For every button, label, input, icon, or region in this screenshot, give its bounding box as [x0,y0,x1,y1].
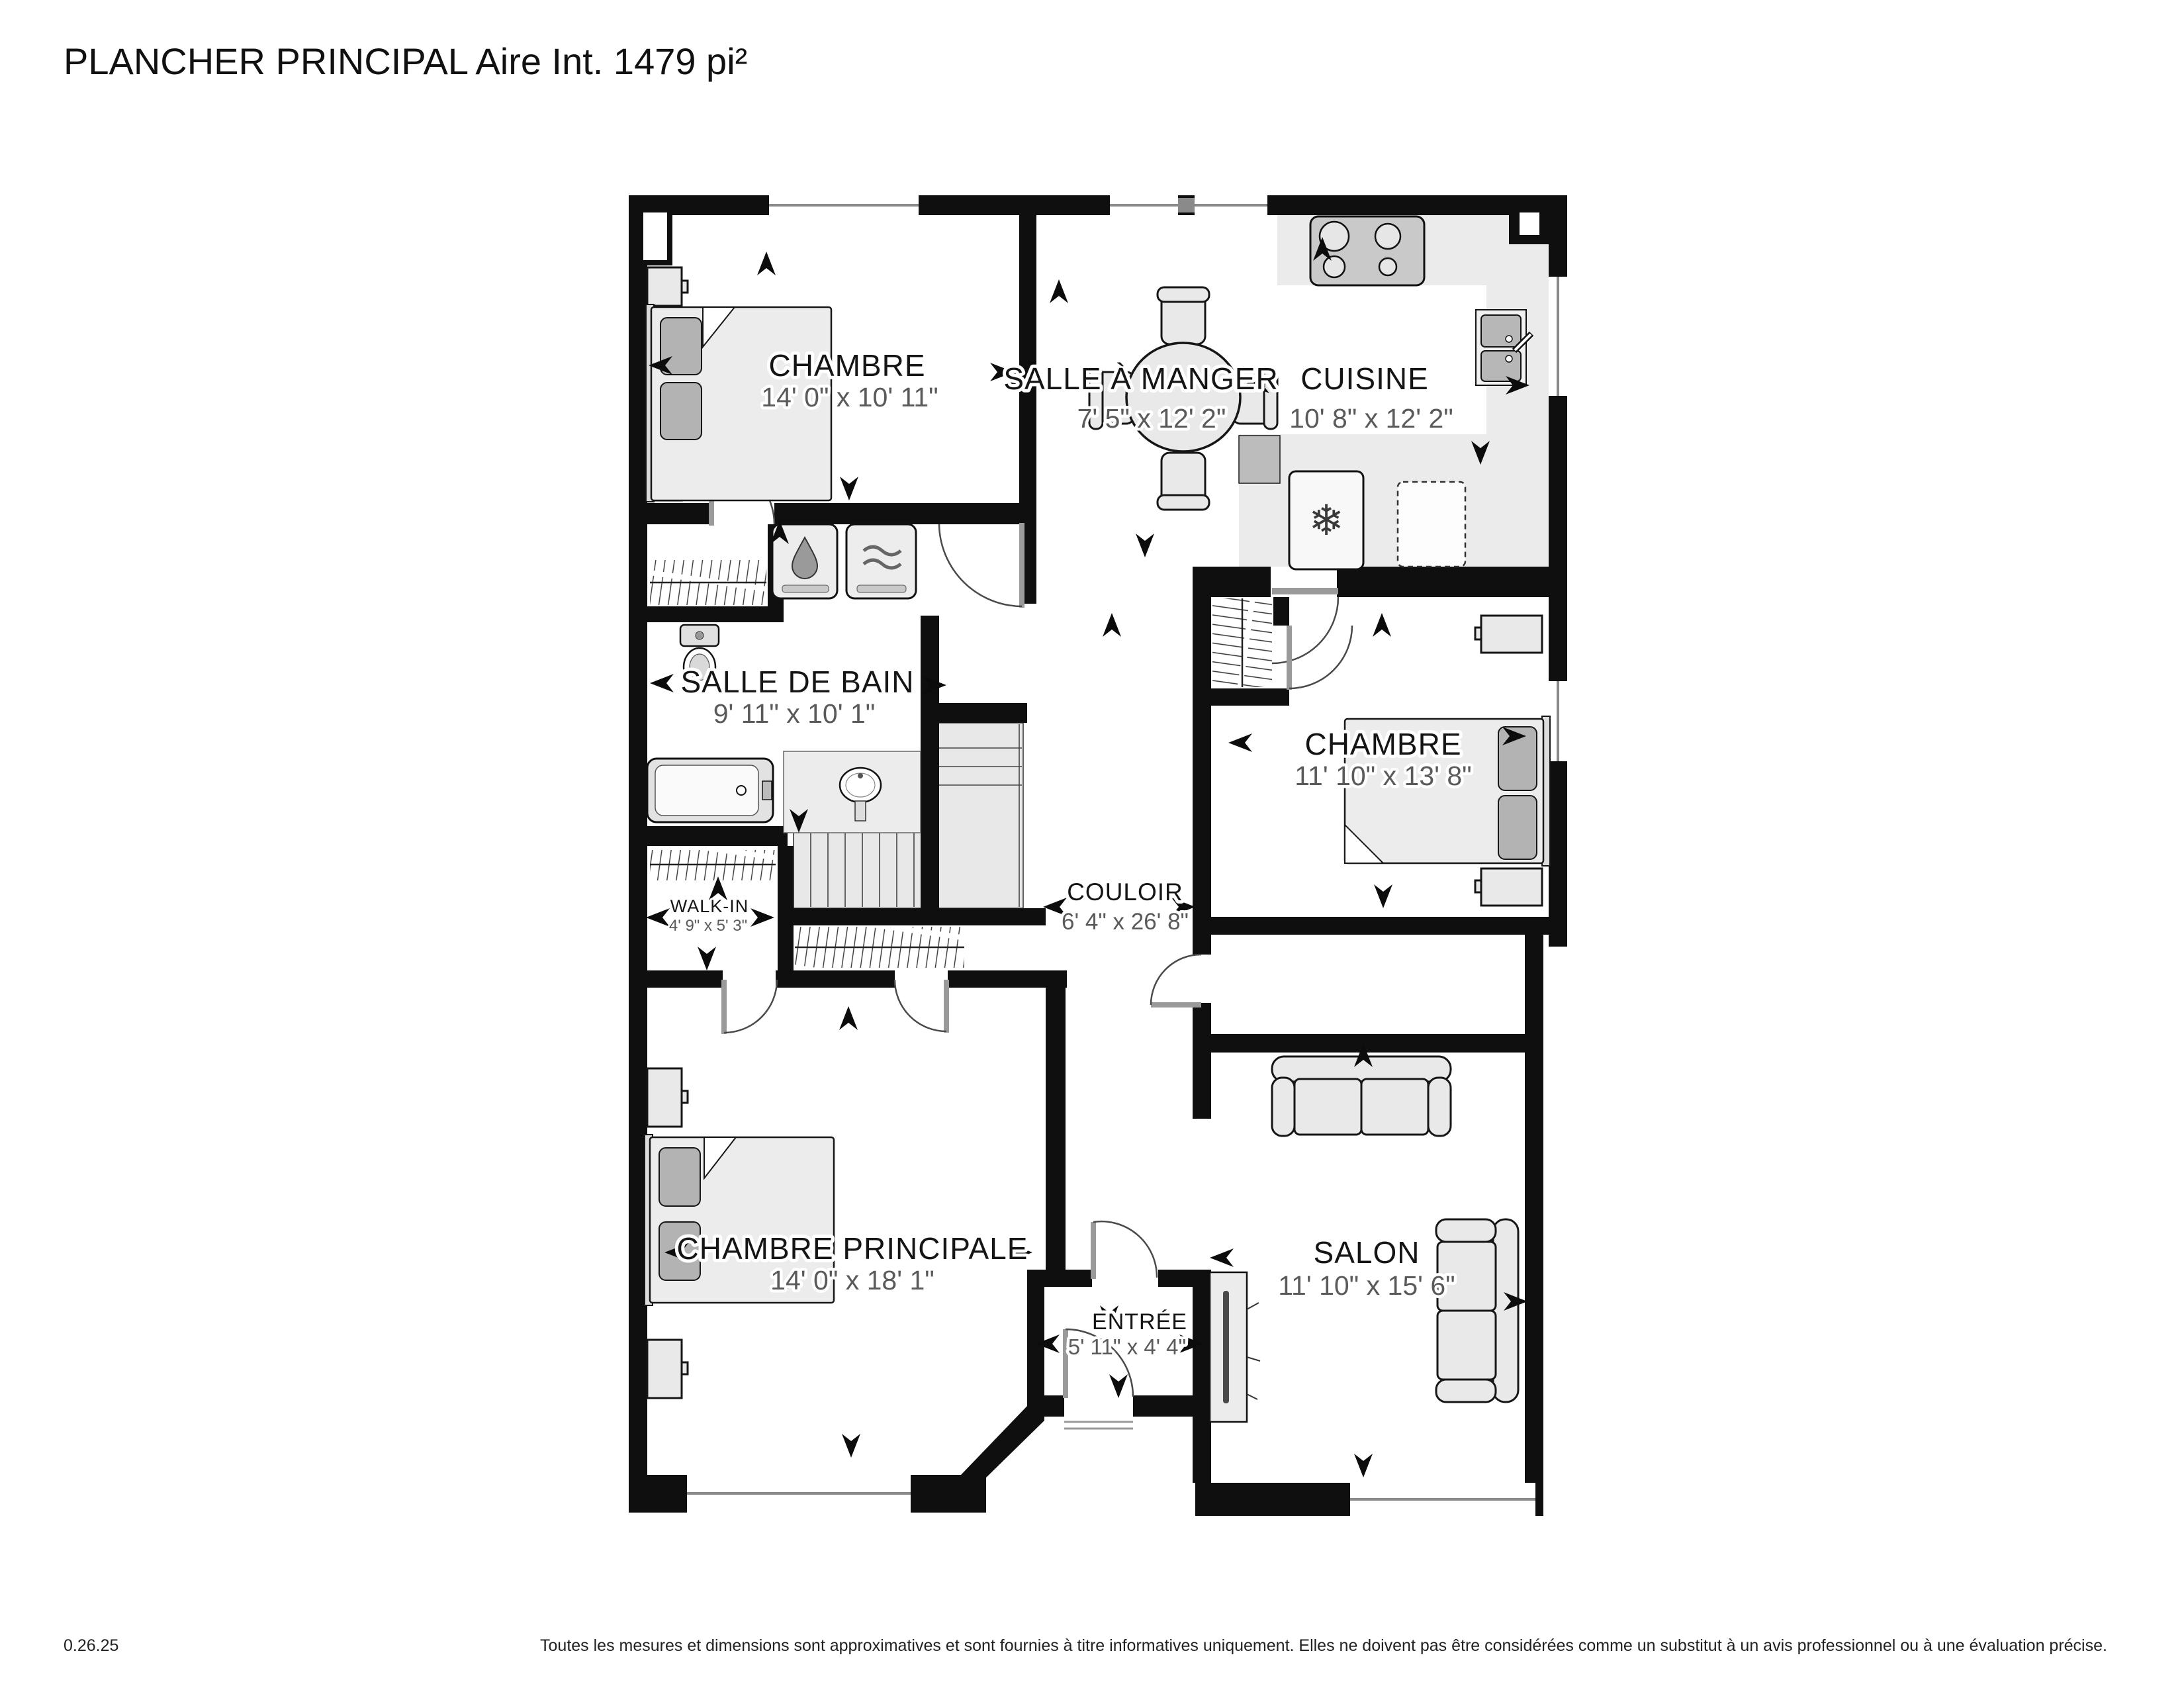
fridge: ❄ [1289,471,1363,569]
dims-walk-in: 4' 9" x 5' 3" [669,917,747,935]
label-bedroom-right: CHAMBRE [1304,727,1461,761]
nightstand [1481,868,1542,906]
dishwasher [1398,482,1465,567]
label-living: SALON [1314,1235,1420,1270]
dims-master: 14' 0" x 18' 1" [770,1265,934,1295]
dims-bedroom-right: 11' 10" x 13' 8" [1295,761,1471,791]
page-title: PLANCHER PRINCIPAL Aire Int. 1479 pi² [64,40,747,82]
label-dining: SALLE À MANGER [1003,361,1278,396]
dims-bathroom: 9' 11" x 10' 1" [713,698,876,729]
label-walk-in: WALK-IN [670,896,749,916]
dims-living: 11' 10" x 15' 6" [1278,1270,1455,1301]
floorplan-canvas: PLANCHER PRINCIPAL Aire Int. 1479 pi² 0.… [0,0,2184,1688]
chimney-left [643,212,667,260]
tv-console [1210,1272,1260,1422]
dining-table [1126,343,1240,451]
label-bedroom-tl: CHAMBRE [768,348,925,383]
dims-entry: 5' 11" x 4' 4" [1068,1335,1187,1359]
counter-block [1239,436,1280,483]
kitchen-sink [1476,310,1531,385]
label-hallway: COULOIR [1067,878,1183,906]
nightstand [1481,616,1542,653]
label-master: CHAMBRE PRINCIPALE [677,1231,1028,1266]
fridge-snowflake-icon: ❄ [1308,496,1344,544]
footer-version: 0.26.25 [64,1636,118,1655]
nightstand [647,1068,682,1127]
vanity-sink [784,751,921,833]
label-kitchen: CUISINE [1300,361,1429,396]
label-entry: ENTRÉE [1092,1309,1187,1335]
sofa [1272,1056,1451,1136]
nightstand [647,1340,682,1398]
dims-kitchen: 10' 8" x 12' 2" [1289,403,1453,434]
nightstand [647,267,682,306]
label-bathroom: SALLE DE BAIN [680,665,914,699]
tv-screen [1223,1291,1229,1403]
dims-dining: 7' 5" x 12' 2" [1077,403,1226,434]
dims-hallway: 6' 4" x 26' 8" [1062,909,1189,935]
dryer [846,524,916,598]
dims-bedroom-tl: 14' 0" x 10' 11" [761,382,938,412]
loveseat [1436,1219,1518,1402]
chimney-kitchen [1520,212,1539,235]
footer-disclaimer: Toutes les mesures et dimensions sont ap… [540,1636,2107,1655]
bathtub [647,759,773,822]
